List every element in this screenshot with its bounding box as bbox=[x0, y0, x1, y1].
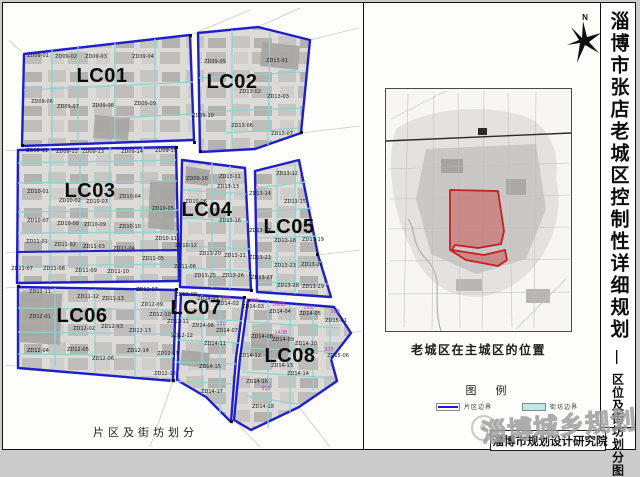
district-boundary-swatch bbox=[436, 403, 460, 411]
block-label: ZD14-14 bbox=[287, 371, 309, 377]
block-label: ZD12-04 bbox=[27, 348, 49, 354]
block-label: ZD10-01 bbox=[27, 189, 49, 195]
block-label: ZD14-12 bbox=[239, 353, 261, 359]
block-label: ZD13-07 bbox=[271, 131, 293, 137]
block-label: ZD14-06 bbox=[192, 323, 214, 329]
legend-title: 图 例 bbox=[440, 382, 540, 398]
block-label: ZD13-25 bbox=[194, 273, 216, 279]
block-label: ZD10-08 bbox=[57, 221, 79, 227]
plot-code-label: 299 bbox=[303, 305, 313, 311]
block-label: ZD10-10 bbox=[119, 224, 141, 230]
block-label: ZD11-03 bbox=[83, 244, 105, 250]
block-label: ZD10-02 bbox=[59, 198, 81, 204]
plot-code-label: 315 bbox=[261, 386, 271, 392]
block-label: ZD13-20 bbox=[199, 251, 221, 257]
block-label: ZD09-02 bbox=[55, 54, 77, 60]
block-label: ZD13-11 bbox=[219, 174, 241, 180]
block-label: ZD09-01 bbox=[27, 53, 49, 59]
district-block-map: LC01LC02LC03LC04LC05LC06LC07LC08ZD09-01Z… bbox=[3, 3, 363, 449]
plot-code-label: 298A bbox=[246, 298, 260, 304]
block-label: ZD12-10 bbox=[149, 312, 171, 318]
block-label: ZD09-05 bbox=[204, 59, 226, 65]
institute-name: 淄博市规划设计研究院 bbox=[493, 433, 608, 449]
block-label: ZD12-13 bbox=[129, 328, 151, 334]
block-label: ZD13-23 bbox=[274, 263, 296, 269]
block-label: ZD14-15 bbox=[199, 364, 221, 370]
block-label: ZD09-10 bbox=[192, 113, 214, 119]
block-label: ZD10-11 bbox=[155, 236, 177, 242]
block-label: ZD15-06 bbox=[327, 353, 349, 359]
block-label: ZD09-11 bbox=[26, 148, 48, 154]
block-label: ZD12-07 bbox=[136, 287, 158, 293]
block-boundary-swatch bbox=[522, 403, 546, 411]
panel-divider bbox=[363, 3, 364, 449]
block-label: ZD13-27 bbox=[251, 275, 273, 281]
block-label: ZD13-15 bbox=[284, 199, 306, 205]
block-label: ZD13-13 bbox=[217, 184, 239, 190]
block-label: ZD11-06 bbox=[174, 264, 196, 270]
block-label: ZD09-13 bbox=[82, 149, 104, 155]
block-label: ZD12-06 bbox=[92, 356, 114, 362]
north-label: N bbox=[582, 13, 588, 22]
district-label: LC01 bbox=[77, 65, 128, 87]
block-label: ZD12-08 bbox=[175, 292, 197, 298]
block-label: ZD13-14 bbox=[249, 191, 271, 197]
block-label: ZD10-05 bbox=[152, 206, 174, 212]
legend-label: 片区边界 bbox=[464, 402, 492, 411]
block-label: ZD09-12 bbox=[56, 149, 78, 155]
block-label: ZD11-02 bbox=[54, 242, 76, 248]
block-label: ZD14-11 bbox=[204, 341, 226, 347]
block-label: ZD13-06 bbox=[231, 123, 253, 129]
block-label: ZD10-07 bbox=[27, 218, 49, 224]
block-label: ZD10-12 bbox=[175, 243, 197, 249]
block-label: ZD13-21 bbox=[224, 253, 246, 259]
block-label: ZD12-09 bbox=[141, 302, 163, 308]
plot-code-label: 298B bbox=[273, 302, 287, 308]
plan-sheet: LC01LC02LC03LC04LC05LC06LC07LC08ZD09-01Z… bbox=[2, 2, 636, 450]
block-label: ZD13-28 bbox=[277, 283, 299, 289]
block-label: ZD14-10 bbox=[295, 341, 317, 347]
block-label: ZD12-11 bbox=[167, 319, 189, 325]
block-label: ZD14-03 bbox=[242, 304, 264, 310]
block-label: ZD12-03 bbox=[101, 324, 123, 330]
plot-code-label: 308 bbox=[330, 309, 340, 315]
block-label: ZD12-01 bbox=[29, 314, 51, 320]
block-label: ZD09-15 bbox=[155, 148, 177, 154]
block-label: ZD12-02 bbox=[73, 326, 95, 332]
district-label: LC06 bbox=[57, 305, 108, 327]
legend: 片区边界 街坊边界 bbox=[436, 402, 578, 411]
block-label: ZD12-16 bbox=[154, 371, 176, 377]
railway-station bbox=[478, 128, 487, 135]
block-label: ZD09-04 bbox=[132, 54, 154, 60]
plot-code-label: 335 bbox=[324, 347, 334, 353]
block-label: ZD14-08 bbox=[251, 334, 273, 340]
block-label: ZD14-16 bbox=[246, 379, 268, 385]
block-label: ZD10-06 bbox=[185, 199, 207, 205]
block-label: ZD14-17 bbox=[201, 389, 223, 395]
institute-box: 淄博市规划设计研究院 bbox=[490, 430, 606, 451]
block-label: ZD10-03 bbox=[86, 199, 108, 205]
block-label: ZD11-10 bbox=[107, 269, 129, 275]
plot-code-label: 130 bbox=[216, 321, 226, 327]
block-label: ZD09-16 bbox=[186, 176, 208, 182]
block-label: ZD14-07 bbox=[216, 328, 238, 334]
block-label: ZD13-02 bbox=[239, 89, 261, 95]
block-label: ZD14-18 bbox=[252, 404, 274, 410]
block-label: ZD13-01 bbox=[266, 58, 288, 64]
compass-star bbox=[567, 21, 601, 63]
block-label: ZD15-01 bbox=[325, 318, 347, 324]
block-label: ZD09-06 bbox=[31, 99, 53, 105]
plot-code-label: 143B bbox=[275, 330, 289, 336]
block-label: ZD13-12 bbox=[276, 171, 298, 177]
sheet-title: 淄博市张店老城区控制性详细规划 bbox=[605, 11, 632, 341]
block-label: ZD13-03 bbox=[267, 94, 289, 100]
locator-caption: 老城区在主城区的位置 bbox=[385, 341, 572, 358]
block-label: ZD13-29 bbox=[302, 284, 324, 290]
block-label: ZD10-04 bbox=[119, 194, 141, 200]
sheet-subtitle: 区位及街坊划分图 bbox=[610, 373, 627, 477]
block-label: ZD14-01 bbox=[197, 296, 219, 302]
plot-code-label: 298 bbox=[221, 296, 231, 302]
legend-item-district-boundary: 片区边界 bbox=[436, 402, 492, 411]
old-town-highlight bbox=[450, 190, 507, 266]
block-label: ZD13-16 bbox=[219, 218, 241, 224]
block-label: ZD13-26 bbox=[222, 273, 244, 279]
block-label: ZD13-22 bbox=[249, 255, 271, 261]
block-label: ZD11-12 bbox=[77, 294, 99, 300]
north-arrow: N bbox=[563, 9, 603, 65]
watermark-stamp bbox=[471, 415, 497, 441]
block-label: ZD09-03 bbox=[85, 54, 107, 60]
block-label: ZD12-14 bbox=[127, 348, 149, 354]
block-label: ZD09-08 bbox=[92, 103, 114, 109]
block-label: ZD11-04 bbox=[113, 246, 135, 252]
district-label: LC05 bbox=[264, 216, 315, 238]
block-label: ZD12-12 bbox=[171, 333, 193, 339]
block-label: ZD12-15 bbox=[157, 351, 179, 357]
block-label: ZD11-07 bbox=[11, 266, 33, 272]
block-label: ZD14-09 bbox=[272, 337, 294, 343]
block-label: ZD13-18 bbox=[274, 238, 296, 244]
block-label: ZD11-13 bbox=[102, 296, 124, 302]
block-label: ZD14-05 bbox=[299, 311, 321, 317]
block-label: ZD11-09 bbox=[75, 268, 97, 274]
locator-map bbox=[385, 88, 572, 332]
legend-label: 街坊边界 bbox=[550, 402, 578, 411]
block-label: ZD13-24 bbox=[301, 262, 323, 268]
block-label: ZD11-05 bbox=[142, 256, 164, 262]
title-column: 淄博市张店老城区控制性详细规划 — 区位及街坊划分图 bbox=[600, 3, 635, 449]
block-label: ZD11-01 bbox=[26, 239, 48, 245]
block-label: ZD09-14 bbox=[121, 149, 143, 155]
title-separator: — bbox=[610, 350, 626, 364]
block-label: ZD13-17 bbox=[249, 228, 271, 234]
block-label: ZD10-09 bbox=[84, 222, 106, 228]
block-label: ZD11-08 bbox=[43, 266, 65, 272]
block-label: ZD12-05 bbox=[67, 347, 89, 353]
block-label: ZD14-13 bbox=[271, 363, 293, 369]
block-label: ZD09-09 bbox=[134, 101, 156, 107]
map-caption: 片区及街坊划分 bbox=[93, 424, 198, 440]
block-label: ZD09-07 bbox=[57, 104, 79, 110]
block-label: ZD14-04 bbox=[269, 309, 291, 315]
block-label: ZD13-19 bbox=[302, 237, 324, 243]
legend-item-block-boundary: 街坊边界 bbox=[522, 402, 578, 411]
block-label: ZD11-11 bbox=[29, 289, 51, 295]
